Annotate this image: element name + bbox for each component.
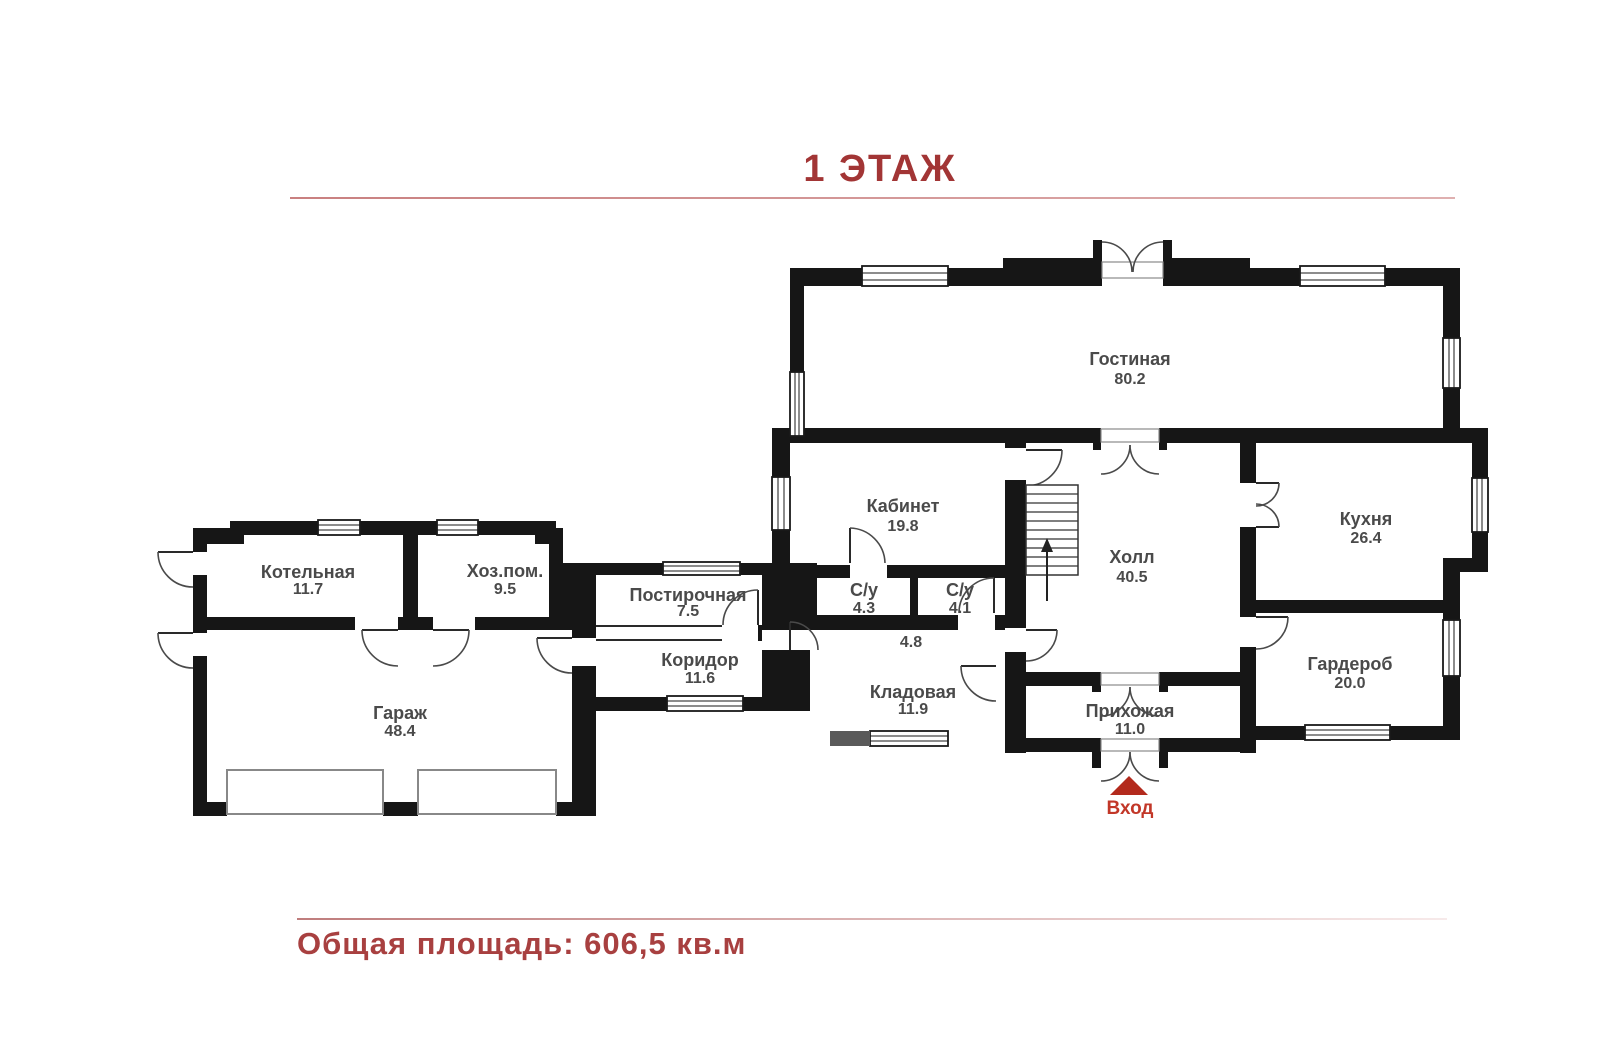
room-label-study: Кабинет [867, 496, 940, 516]
room-label-corridor: Коридор [661, 650, 738, 670]
room-label-boiler-room: Котельная [261, 562, 355, 582]
room-label-garage: Гараж [373, 703, 427, 723]
window-icon [1300, 266, 1385, 286]
door-arc [1101, 752, 1159, 781]
door-arc [537, 638, 572, 673]
window-icon [1443, 338, 1460, 388]
door-arc [961, 666, 996, 701]
room-label-storage: Кладовая [870, 682, 956, 702]
window-icon [790, 372, 804, 436]
window-icon [870, 731, 948, 746]
floor-plan: Вход Гостиная 80.2 Кабинет 19.8 Холл 40.… [0, 0, 1600, 1060]
room-area-utility-room: 9.5 [494, 581, 516, 598]
window-icon [1443, 620, 1460, 676]
wall-shade-segment [830, 731, 870, 746]
door-arc [850, 528, 885, 563]
door-arc [158, 633, 193, 668]
stairs-icon [1026, 485, 1078, 601]
room-area-living-room: 80.2 [1114, 371, 1145, 388]
window-icon [663, 562, 740, 575]
room-label-living-room: Гостиная [1089, 349, 1170, 369]
door-arc [1101, 445, 1159, 474]
room-area-kitchen: 26.4 [1350, 530, 1381, 547]
footer-divider-line [297, 918, 1447, 920]
window-icon [1305, 725, 1390, 740]
room-label-entry-hall: Прихожая [1086, 701, 1175, 721]
room-area-garage: 48.4 [384, 723, 415, 740]
light-partition [596, 626, 722, 640]
room-area-corridor: 11.6 [685, 670, 715, 687]
room-area-wc-1: 4.3 [853, 600, 875, 617]
room-area-passage: 4.8 [900, 634, 922, 651]
room-area-boiler-room: 11.7 [293, 581, 323, 598]
room-label-kitchen: Кухня [1340, 509, 1393, 529]
total-area-label: Общая площадь: 606,5 кв.м [297, 926, 746, 962]
room-label-laundry: Постирочная [630, 585, 747, 605]
room-area-laundry: 7.5 [677, 603, 699, 620]
door-thresholds [1101, 262, 1163, 751]
room-area-storage: 11.9 [898, 701, 928, 718]
room-label-wc-1: С/у [850, 580, 878, 600]
door-arc [1026, 450, 1062, 486]
garage-door-icons [227, 731, 870, 814]
entrance-label: Вход [1107, 798, 1154, 819]
entrance-marker: Вход [1107, 776, 1154, 819]
room-area-wardrobe: 20.0 [1334, 675, 1365, 692]
door-openings [193, 256, 1256, 816]
window-icon [1472, 478, 1488, 532]
room-label-utility-room: Хоз.пом. [467, 561, 543, 581]
door-arc [362, 630, 398, 666]
room-label-wardrobe: Гардероб [1307, 654, 1392, 674]
room-label-wc-2: С/у [946, 580, 974, 600]
room-area-wc-2: 4.1 [949, 600, 971, 617]
room-label-hall: Холл [1109, 547, 1154, 567]
door-arc [1256, 483, 1279, 527]
room-area-study: 19.8 [887, 518, 918, 535]
entrance-arrow-icon [1110, 776, 1148, 795]
door-arc [433, 630, 469, 666]
window-icon [862, 266, 948, 286]
door-arc [1026, 630, 1057, 661]
door-arc [158, 552, 193, 587]
window-icon [437, 520, 478, 535]
window-icon [318, 520, 360, 535]
door-arc [1256, 617, 1288, 649]
room-area-hall: 40.5 [1116, 569, 1147, 586]
window-icon [667, 696, 743, 711]
room-area-entry-hall: 11.0 [1115, 721, 1145, 738]
window-icon [772, 477, 790, 530]
